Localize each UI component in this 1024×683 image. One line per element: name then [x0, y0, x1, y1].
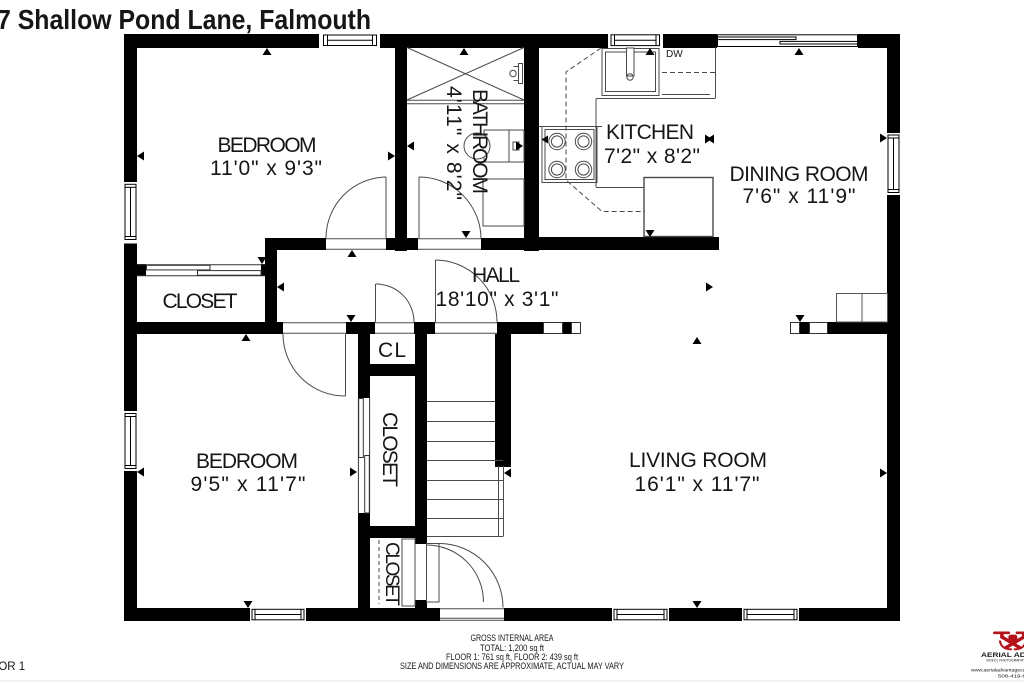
svg-text:7'2" x 8'2": 7'2" x 8'2" [604, 145, 700, 168]
svg-text:9'5" x 11'7": 9'5" x 11'7" [191, 473, 306, 496]
svg-text:KITCHEN: KITCHEN [606, 121, 694, 144]
svg-text:CLOSET: CLOSET [378, 412, 401, 487]
svg-text:FLOOR 1: FLOOR 1 [0, 661, 25, 673]
svg-text:CL: CL [378, 339, 406, 362]
svg-text:LIVING ROOM: LIVING ROOM [629, 449, 767, 472]
svg-text:DW: DW [666, 49, 683, 60]
svg-text:11'0" x 9'3": 11'0" x 9'3" [210, 157, 322, 180]
svg-text:www.aerialadvantagecapecod.com: www.aerialadvantagecapecod.com [971, 668, 1024, 674]
svg-text:BATHROOM: BATHROOM [468, 89, 491, 194]
svg-text:CLOSET: CLOSET [381, 542, 402, 606]
svg-text:BEDROOM: BEDROOM [196, 450, 298, 473]
svg-text:CLOSET: CLOSET [163, 290, 238, 313]
svg-text:7'6" x 11'9": 7'6" x 11'9" [743, 185, 856, 208]
svg-text:BEDROOM: BEDROOM [218, 134, 317, 157]
svg-text:7 Shallow Pond Lane, Falmouth: 7 Shallow Pond Lane, Falmouth [0, 4, 371, 35]
svg-text:GROSS INTERNAL AREA: GROSS INTERNAL AREA [471, 633, 554, 643]
svg-text:508-419-6148: 508-419-6148 [998, 674, 1024, 680]
svg-text:VIDEO | PHOTOGRAPHY | MARKETIN: VIDEO | PHOTOGRAPHY | MARKETING [986, 659, 1024, 663]
svg-text:HALL: HALL [472, 264, 520, 287]
svg-text:SIZE AND DIMENSIONS ARE APPROX: SIZE AND DIMENSIONS ARE APPROXIMATE, ACT… [400, 661, 625, 672]
svg-text:18'10" x 3'1": 18'10" x 3'1" [436, 288, 559, 311]
svg-text:DINING ROOM: DINING ROOM [730, 163, 869, 186]
svg-text:4'11" x 8'2": 4'11" x 8'2" [442, 86, 465, 200]
svg-text:16'1" x 11'7": 16'1" x 11'7" [635, 473, 760, 496]
